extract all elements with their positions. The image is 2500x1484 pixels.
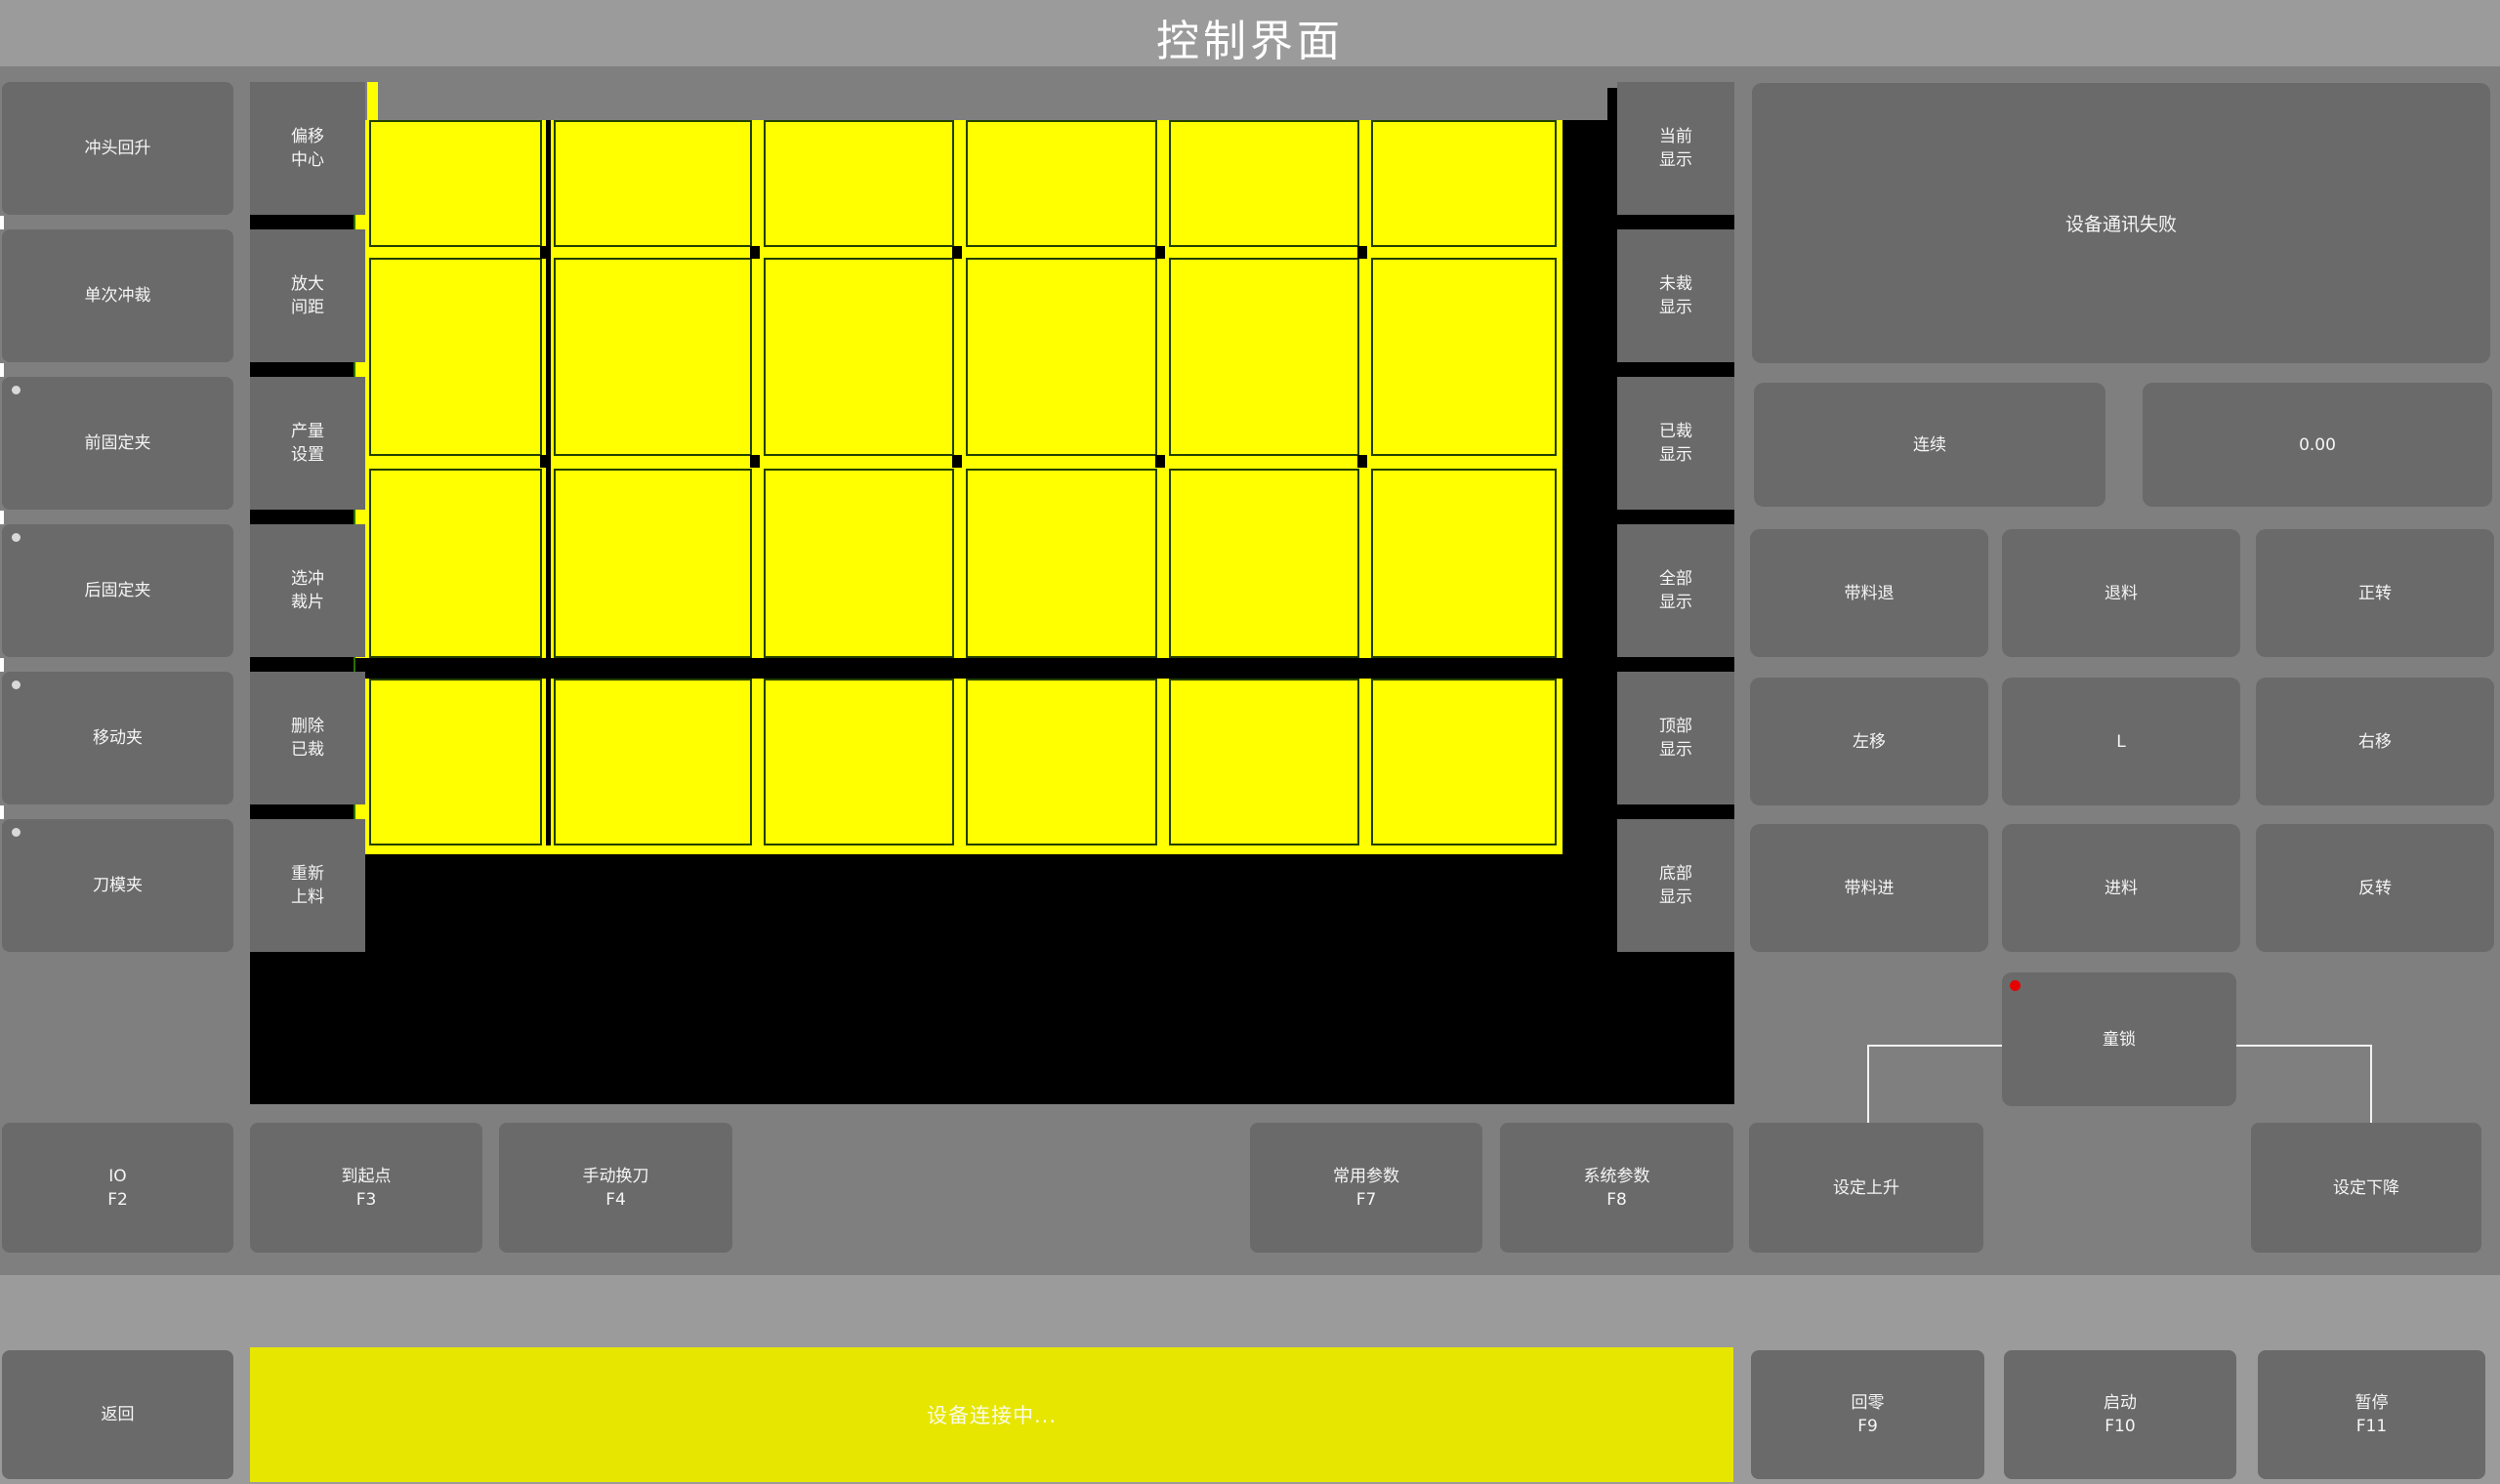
piece-cell-r3c4[interactable] <box>966 469 1157 658</box>
bracket-line-left <box>1867 1045 1869 1123</box>
tool-button-3[interactable]: 产量 设置 <box>250 377 365 510</box>
function-button-设定下降[interactable]: 设定下降 <box>2251 1123 2481 1253</box>
grid-thick-divider <box>546 120 551 845</box>
piece-cell-r4c6[interactable] <box>1371 679 1557 845</box>
piece-cell-r4c5[interactable] <box>1169 679 1359 845</box>
piece-cell-r3c3[interactable] <box>764 469 954 658</box>
piece-cell-r3c2[interactable] <box>554 469 752 658</box>
piece-cell-r4c3[interactable] <box>764 679 954 845</box>
piece-cell-r1c1[interactable] <box>369 120 542 247</box>
piece-cell-r1c3[interactable] <box>764 120 954 247</box>
piece-cell-r2c3[interactable] <box>764 258 954 456</box>
left-edge-notch-1 <box>0 216 4 229</box>
tool-button-6[interactable]: 重新 上料 <box>250 819 365 952</box>
function-button-F2[interactable]: IO F2 <box>2 1123 233 1253</box>
child-lock-button[interactable]: 童锁 <box>2002 972 2236 1106</box>
grid-tick-g1b2 <box>750 246 760 259</box>
left-edge-notch-3 <box>0 511 4 524</box>
left-button-1[interactable]: 冲头回升 <box>2 82 233 215</box>
mode-button-label: 连续 <box>1913 433 1946 457</box>
grid-tick-g1b5 <box>1357 246 1367 259</box>
piece-cell-r3c5[interactable] <box>1169 469 1359 658</box>
left-edge-notch-5 <box>0 805 4 819</box>
mode-button[interactable]: 连续 <box>1754 383 2105 507</box>
piece-cell-r3c1[interactable] <box>369 469 542 658</box>
left-button-5[interactable]: 移动夹 <box>2 672 233 804</box>
piece-cell-r4c4[interactable] <box>966 679 1157 845</box>
left-button-2[interactable]: 单次冲裁 <box>2 229 233 362</box>
value-display: 0.00 <box>2143 383 2492 507</box>
grid-tick-g2b3 <box>952 455 962 468</box>
connection-status-text: 设备连接中... <box>927 1400 1057 1429</box>
left-button-6[interactable]: 刀模夹 <box>2 819 233 952</box>
back-button-label: 返回 <box>102 1403 135 1426</box>
tool-button-2[interactable]: 放大 间距 <box>250 229 365 362</box>
left-button-4-indicator <box>12 533 21 542</box>
jog-button-r2c2[interactable]: L <box>2002 678 2240 805</box>
grid-tick-g2b4 <box>1155 455 1165 468</box>
piece-cell-r2c2[interactable] <box>554 258 752 456</box>
comm-status-box: 设备通讯失败 <box>1752 83 2490 363</box>
page-title: 控制界面 <box>0 6 2500 68</box>
grid-tick-g2b1 <box>540 455 550 468</box>
piece-cell-r2c4[interactable] <box>966 258 1157 456</box>
back-button[interactable]: 返回 <box>2 1350 233 1479</box>
display-button-6[interactable]: 底部 显示 <box>1617 819 1734 952</box>
grid-top-tab <box>367 82 378 120</box>
jog-button-r3c3[interactable]: 反转 <box>2256 824 2494 952</box>
piece-cell-r1c6[interactable] <box>1371 120 1557 247</box>
left-button-4[interactable]: 后固定夹 <box>2 524 233 657</box>
grid-tick-g1b1 <box>540 246 550 259</box>
piece-cell-r1c5[interactable] <box>1169 120 1359 247</box>
function-button-F7[interactable]: 常用参数 F7 <box>1250 1123 1482 1253</box>
display-button-3[interactable]: 已裁 显示 <box>1617 377 1734 510</box>
jog-button-r2c3[interactable]: 右移 <box>2256 678 2494 805</box>
display-button-1[interactable]: 当前 显示 <box>1617 82 1734 215</box>
jog-button-r3c2[interactable]: 进料 <box>2002 824 2240 952</box>
left-button-6-indicator <box>12 828 21 837</box>
function-button-F8[interactable]: 系统参数 F8 <box>1500 1123 1733 1253</box>
display-button-5[interactable]: 顶部 显示 <box>1617 672 1734 804</box>
left-edge-notch-4 <box>0 658 4 672</box>
function-button-F3[interactable]: 到起点 F3 <box>250 1123 482 1253</box>
child-lock-indicator <box>2010 980 2021 991</box>
grid-tick-g1b3 <box>952 246 962 259</box>
comm-status-text: 设备通讯失败 <box>2065 210 2177 236</box>
display-button-4[interactable]: 全部 显示 <box>1617 524 1734 657</box>
piece-cell-r2c5[interactable] <box>1169 258 1359 456</box>
jog-button-r1c2[interactable]: 退料 <box>2002 529 2240 657</box>
jog-button-r2c1[interactable]: 左移 <box>1750 678 1988 805</box>
piece-cell-r1c2[interactable] <box>554 120 752 247</box>
bottom-button-F9[interactable]: 回零 F9 <box>1751 1350 1984 1479</box>
left-button-5-indicator <box>12 680 21 689</box>
piece-cell-r3c6[interactable] <box>1371 469 1557 658</box>
child-lock-label: 童锁 <box>2103 1028 2136 1051</box>
jog-button-r1c1[interactable]: 带料退 <box>1750 529 1988 657</box>
control-screen: 控制界面 设备通讯失败 连续 0.00 童锁 返回 设备连接中... 冲头回升单… <box>0 0 2500 1484</box>
grid-tick-g1b4 <box>1155 246 1165 259</box>
jog-button-r3c1[interactable]: 带料进 <box>1750 824 1988 952</box>
piece-cell-r2c6[interactable] <box>1371 258 1557 456</box>
display-button-2[interactable]: 未裁 显示 <box>1617 229 1734 362</box>
grid-tick-g2b5 <box>1357 455 1367 468</box>
tool-button-1[interactable]: 偏移 中心 <box>250 82 365 215</box>
tool-button-4[interactable]: 选冲 裁片 <box>250 524 365 657</box>
left-button-3[interactable]: 前固定夹 <box>2 377 233 510</box>
piece-cell-r1c4[interactable] <box>966 120 1157 247</box>
bottom-button-F10[interactable]: 启动 F10 <box>2004 1350 2236 1479</box>
jog-button-r1c3[interactable]: 正转 <box>2256 529 2494 657</box>
piece-cell-r2c1[interactable] <box>369 258 542 456</box>
tool-button-5[interactable]: 删除 已裁 <box>250 672 365 804</box>
function-button-设定上升[interactable]: 设定上升 <box>1749 1123 1983 1253</box>
bottom-button-F11[interactable]: 暂停 F11 <box>2258 1350 2485 1479</box>
left-button-3-indicator <box>12 386 21 394</box>
grid-tick-g2b2 <box>750 455 760 468</box>
value-display-text: 0.00 <box>2299 433 2336 457</box>
piece-grid[interactable] <box>354 120 1562 854</box>
function-button-F4[interactable]: 手动换刀 F4 <box>499 1123 732 1253</box>
piece-cell-r4c2[interactable] <box>554 679 752 845</box>
connection-status-bar: 设备连接中... <box>250 1347 1733 1482</box>
piece-cell-r4c1[interactable] <box>369 679 542 845</box>
left-edge-notch-2 <box>0 363 4 377</box>
grid-black-band <box>355 658 1562 679</box>
bracket-line-right <box>2370 1045 2372 1123</box>
